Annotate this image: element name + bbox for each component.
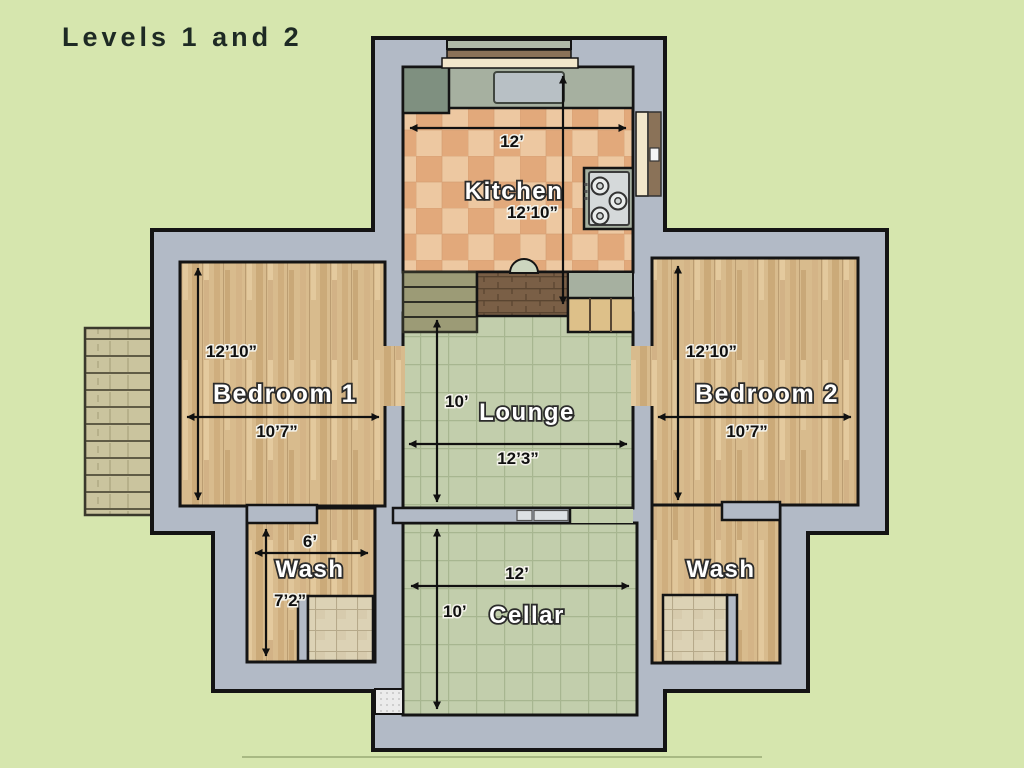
dim-lounge-height: 10’ bbox=[445, 392, 469, 411]
dim-cellar-height: 10’ bbox=[443, 602, 467, 621]
cellar-wall-window-2 bbox=[534, 511, 568, 521]
dim-bedroom2-height: 12’10” bbox=[686, 342, 737, 361]
room-label-bedroom2: Bedroom 2 bbox=[695, 380, 839, 408]
room-label-wash-left: Wash bbox=[275, 556, 344, 583]
dim-wash-left-height: 7’2” bbox=[274, 591, 306, 610]
cellar-vent-icon bbox=[375, 689, 403, 714]
room-label-wash-right: Wash bbox=[686, 556, 755, 583]
stove-knobs bbox=[585, 183, 588, 200]
bedroom1-door-opening bbox=[383, 346, 405, 406]
shower-right bbox=[663, 595, 727, 662]
room-label-cellar: Cellar bbox=[489, 602, 565, 629]
kitchen-door-icon bbox=[636, 112, 661, 196]
dim-cellar-width: 12’ bbox=[505, 564, 529, 583]
lounge-cellar-opening bbox=[570, 509, 633, 523]
brick-landing bbox=[477, 272, 568, 316]
dim-bedroom2-width: 10’7” bbox=[726, 422, 768, 441]
landing-right bbox=[568, 272, 633, 298]
floor-plan-canvas: Levels 1 and 2 bbox=[0, 0, 1024, 768]
stairs-right-icon bbox=[568, 298, 633, 332]
room-label-lounge: Lounge bbox=[479, 399, 575, 426]
page-title: Levels 1 and 2 bbox=[62, 22, 303, 52]
wash-right-top-wall bbox=[722, 502, 780, 520]
fridge-counter-icon bbox=[403, 67, 449, 113]
cellar-wall-window-1 bbox=[517, 511, 532, 521]
dim-lounge-width: 12’3” bbox=[497, 449, 539, 468]
dim-kitchen-height: 12’10” bbox=[507, 203, 558, 222]
dim-bedroom1-width: 10’7” bbox=[256, 422, 298, 441]
shower-right-stub bbox=[727, 595, 737, 662]
room-label-kitchen: Kitchen bbox=[465, 178, 564, 205]
kitchen-window-icon bbox=[442, 40, 578, 68]
sink-icon bbox=[494, 72, 564, 103]
stone-path bbox=[85, 328, 152, 515]
wash-left-top-wall bbox=[247, 505, 317, 523]
dim-bedroom1-height: 12’10” bbox=[206, 342, 257, 361]
room-label-bedroom1: Bedroom 1 bbox=[213, 380, 357, 408]
dim-wash-left-width: 6’ bbox=[303, 532, 317, 551]
dim-kitchen-width: 12’ bbox=[500, 132, 524, 151]
bedroom2-door-opening bbox=[631, 346, 654, 406]
shower-left bbox=[308, 596, 373, 661]
